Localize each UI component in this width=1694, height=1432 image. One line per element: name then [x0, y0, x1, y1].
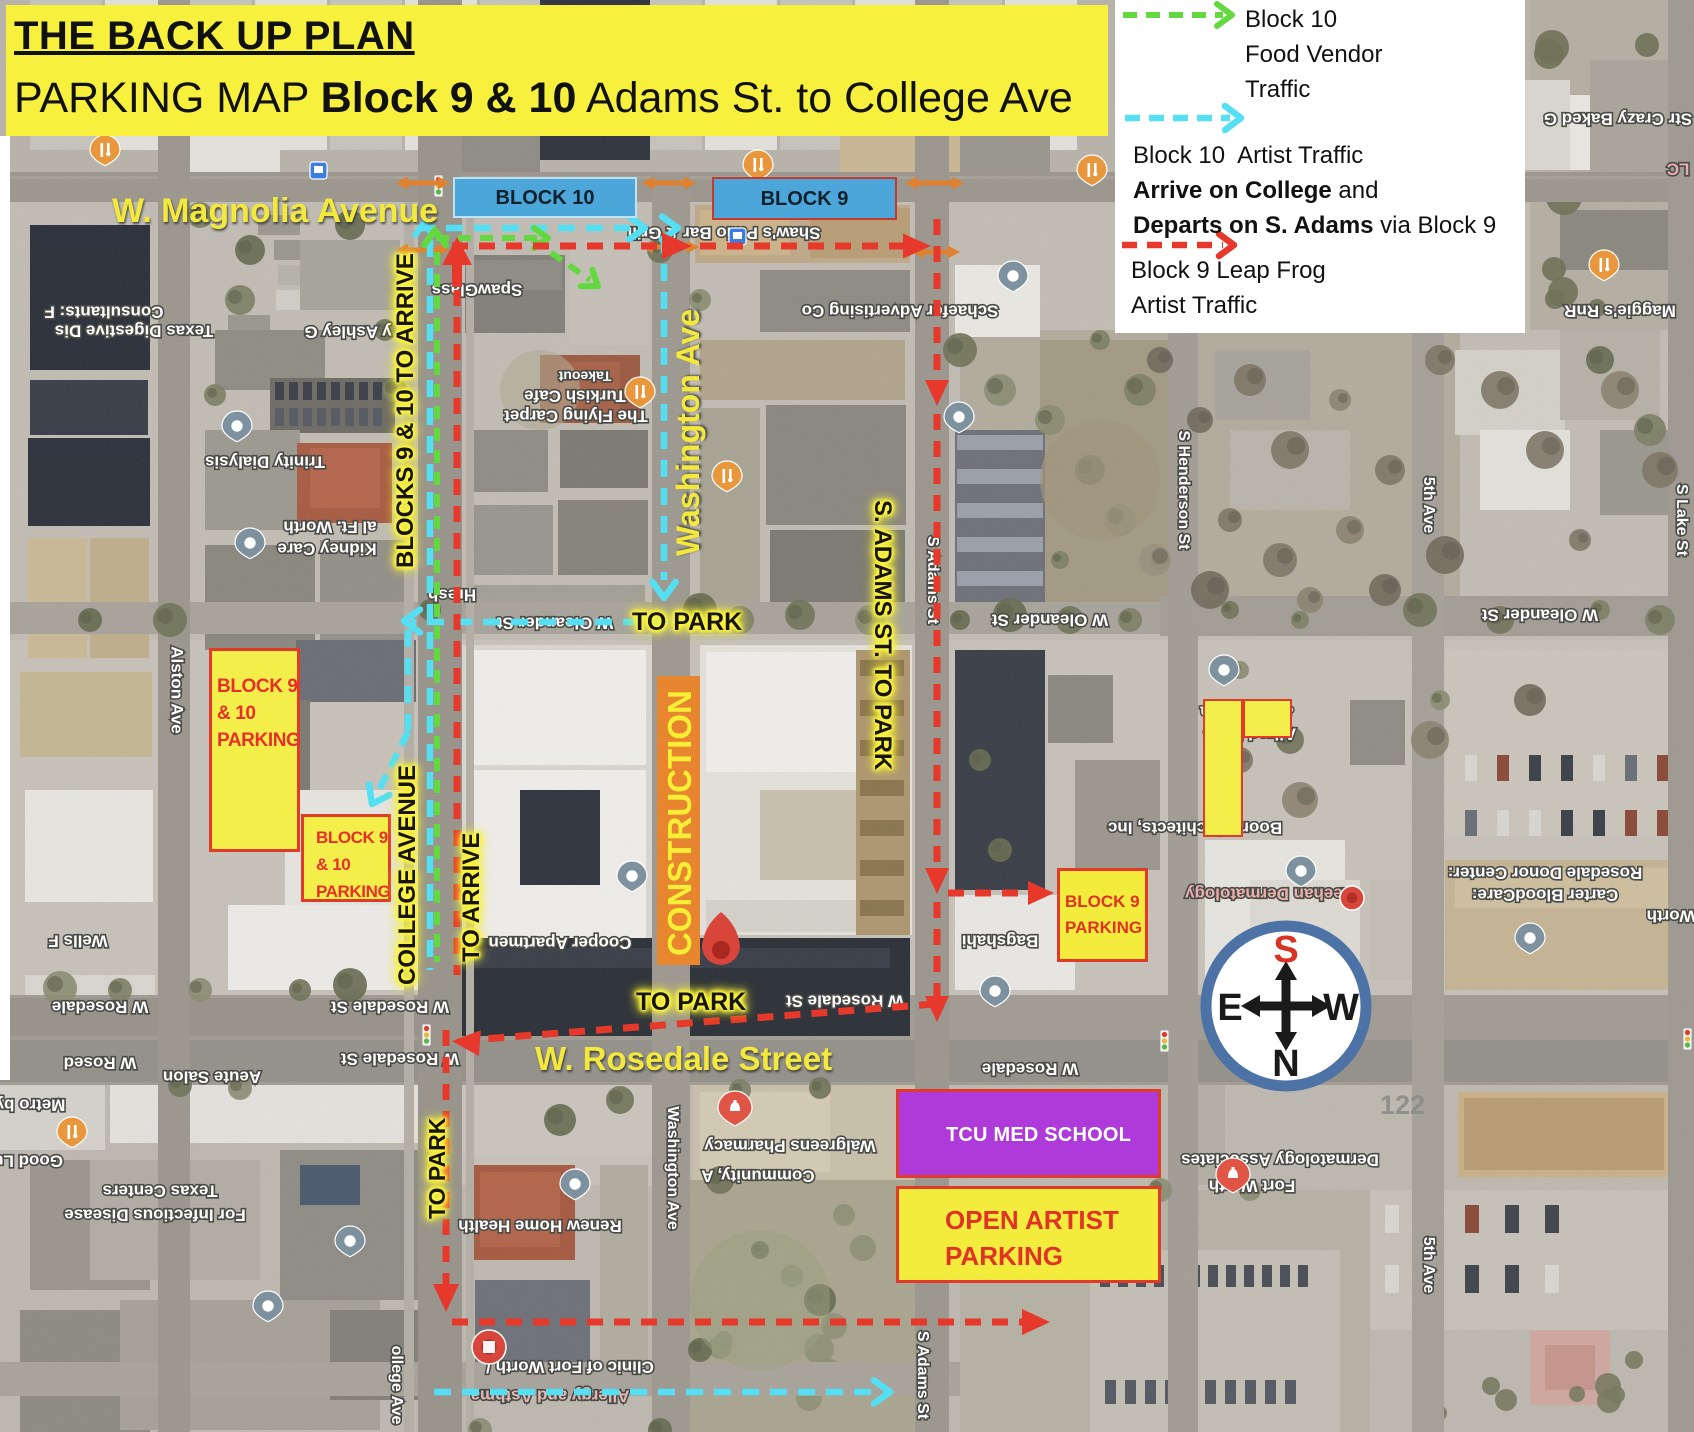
svg-text:W: W [1323, 987, 1359, 1029]
svg-text:N: N [1272, 1043, 1299, 1085]
svg-text:S: S [1273, 929, 1298, 971]
svg-text:E: E [1217, 987, 1242, 1029]
